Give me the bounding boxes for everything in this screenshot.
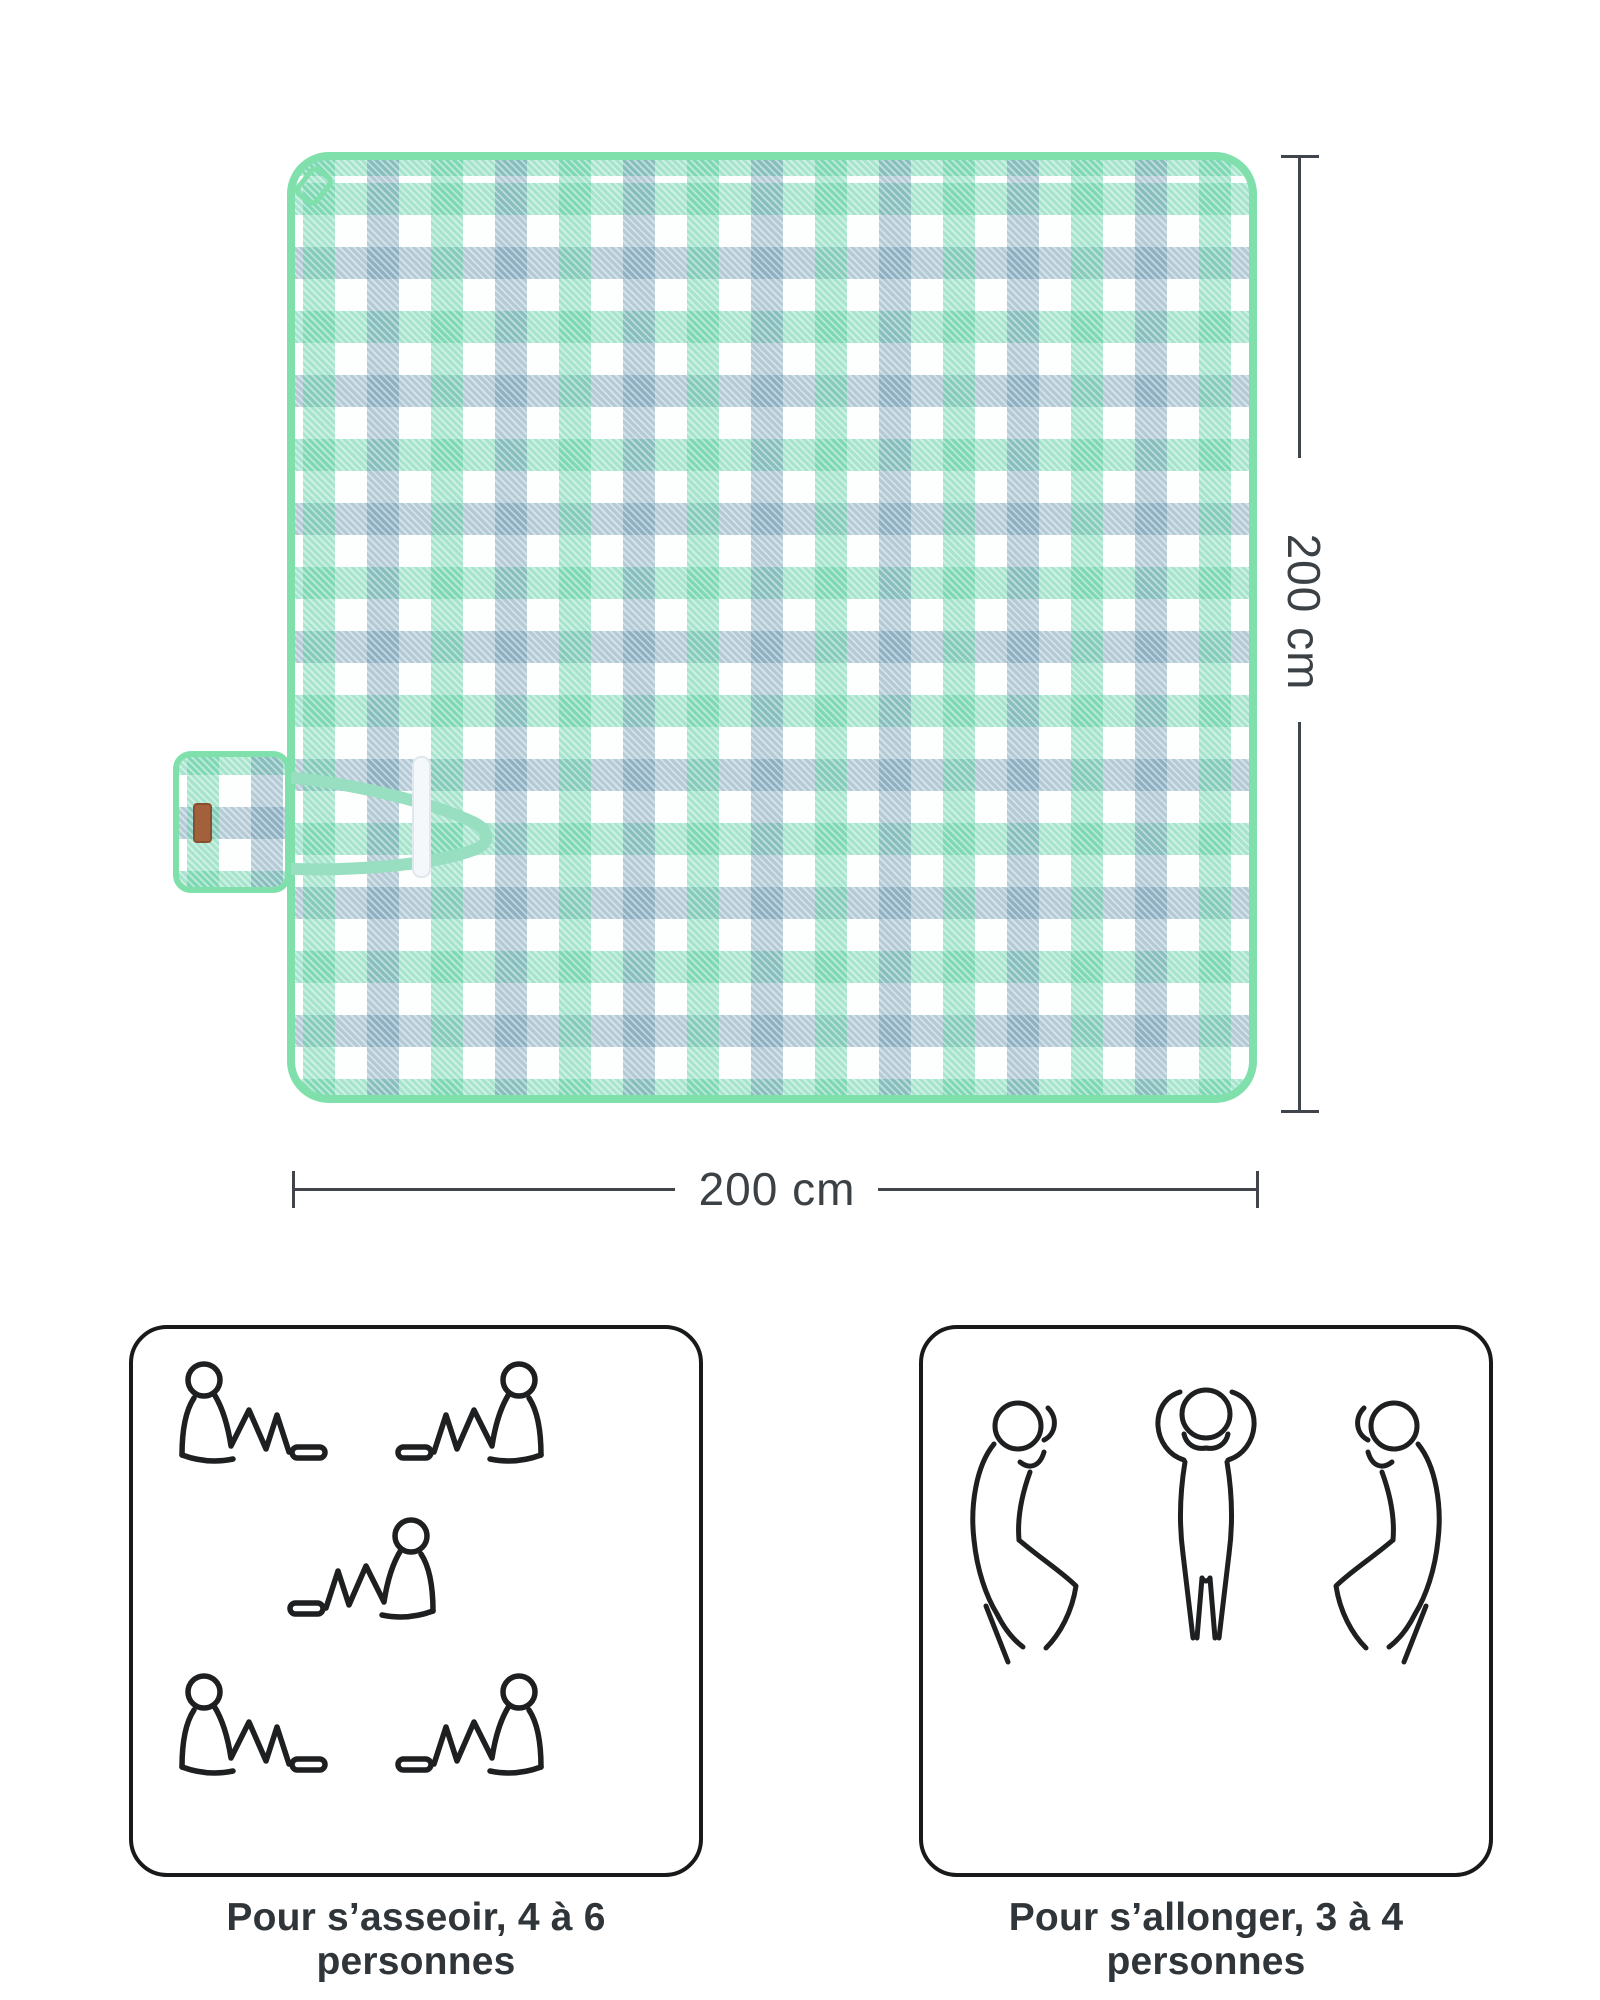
- sitting-person-icon: [287, 1514, 442, 1639]
- blanket-flap: [173, 751, 291, 893]
- height-dimension-label: 200 cm: [1281, 512, 1327, 712]
- sitting-person-icon: [173, 1358, 328, 1483]
- height-dimension-cap-bottom: [1281, 1110, 1319, 1113]
- width-dimension-cap-right: [1256, 1171, 1259, 1208]
- product-infographic: 200 cm 200 cm Pour s’asseoir, 4 à 6 pers…: [0, 0, 1600, 2000]
- sitting-person-icon: [173, 1670, 328, 1795]
- height-dimension-line-lower: [1298, 722, 1301, 1112]
- width-dimension-line-right: [878, 1188, 1258, 1191]
- blanket-top-view: [287, 152, 1257, 1103]
- lying-caption: Pour s’allonger, 3 à 4 personnes: [919, 1896, 1493, 1984]
- flap-leather-label: [193, 803, 212, 843]
- velcro-strip: [413, 757, 430, 877]
- height-dimension-line-upper: [1298, 155, 1301, 458]
- lying-person-icon: [962, 1382, 1102, 1692]
- lying-person-icon: [1310, 1382, 1450, 1692]
- width-dimension-line-left: [292, 1188, 675, 1191]
- lying-person-icon: [1136, 1372, 1276, 1682]
- sitting-caption: Pour s’asseoir, 4 à 6 personnes: [129, 1896, 703, 1984]
- sitting-person-icon: [395, 1670, 550, 1795]
- sitting-person-icon: [395, 1358, 550, 1483]
